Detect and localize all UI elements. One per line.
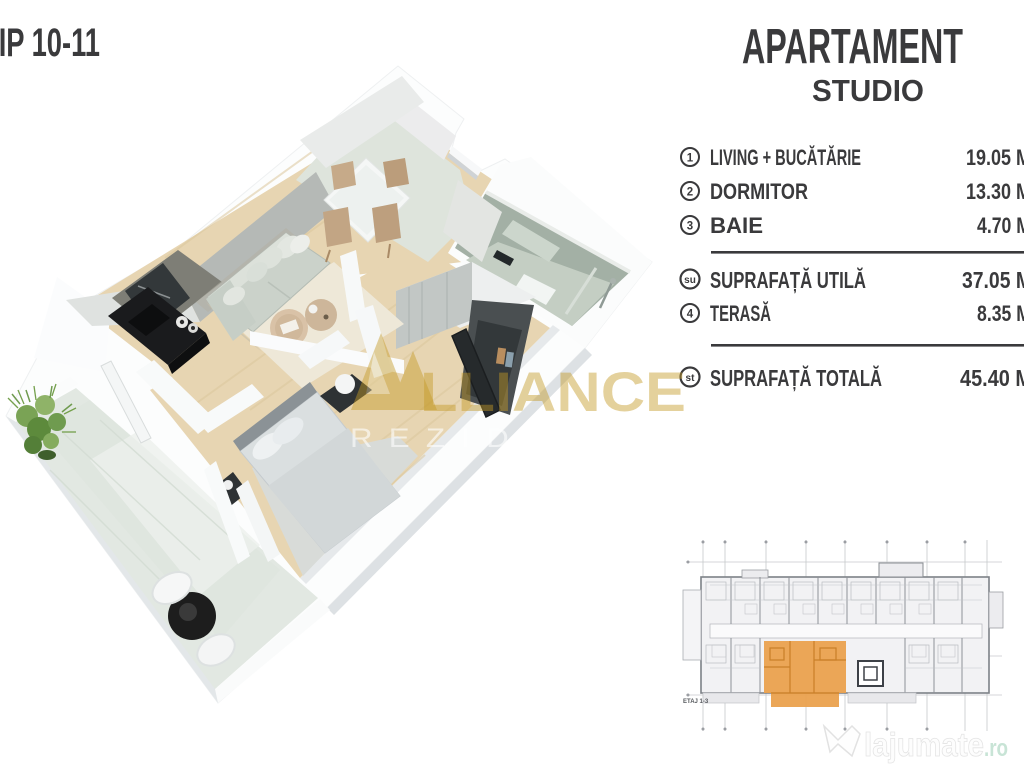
svg-text:TIP 10-11: TIP 10-11 [0,21,100,65]
svg-text:4.70 M: 4.70 M [977,213,1024,238]
svg-text:8.35 M: 8.35 M [977,301,1024,326]
svg-text:SUPRAFAȚĂ UTILĂ: SUPRAFAȚĂ UTILĂ [710,266,866,293]
svg-text:TERASĂ: TERASĂ [710,301,771,326]
svg-text:lajumate: lajumate [864,726,984,763]
svg-text:2: 2 [687,187,693,199]
svg-text:.ro: .ro [984,735,1008,762]
svg-text:LLIANCE: LLIANCE [420,360,686,423]
svg-text:su: su [684,275,696,286]
svg-text:APARTAMENT: APARTAMENT [742,20,963,74]
svg-text:BAIE: BAIE [710,213,763,238]
svg-text:DORMITOR: DORMITOR [710,179,808,204]
svg-text:LIVING + BUCĂTĂRIE: LIVING + BUCĂTĂRIE [710,145,861,170]
svg-text:REZIDE: REZIDE [350,423,562,453]
svg-text:19.05 M: 19.05 M [966,145,1024,170]
svg-text:SUPRAFAȚĂ TOTALĂ: SUPRAFAȚĂ TOTALĂ [710,364,882,391]
svg-text:13.30 M: 13.30 M [966,179,1024,204]
svg-text:STUDIO: STUDIO [812,73,924,108]
svg-text:4: 4 [687,309,694,321]
svg-text:ETAJ 1-3: ETAJ 1-3 [683,699,709,705]
svg-text:45.40 M: 45.40 M [960,365,1024,391]
svg-text:37.05 M: 37.05 M [962,267,1024,293]
svg-text:st: st [686,373,696,384]
svg-text:1: 1 [687,153,694,165]
svg-text:3: 3 [687,221,693,233]
